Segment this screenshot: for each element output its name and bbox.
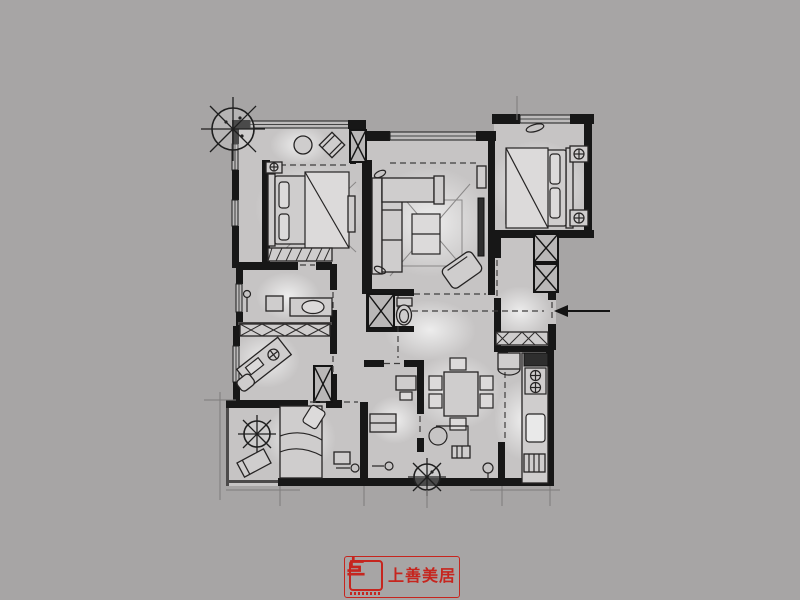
shaft-column [534, 264, 558, 292]
washer [266, 296, 283, 311]
bedside-lamp [270, 163, 278, 171]
desk [396, 376, 416, 390]
pillow [279, 214, 289, 240]
chair [429, 394, 442, 408]
balcony-cabinet [350, 130, 366, 162]
logo-monogram-icon [349, 560, 383, 591]
chair [450, 418, 466, 430]
pillow [550, 154, 560, 184]
chair [429, 376, 442, 390]
range-hood [524, 353, 548, 366]
dining-table [444, 372, 478, 416]
pillow [550, 188, 560, 218]
sofa-armrest [434, 176, 444, 204]
bedside-lamp [574, 213, 584, 223]
side-shelf [477, 166, 486, 188]
dresser [268, 248, 332, 261]
nightstand [334, 452, 350, 464]
logo-subtext-marks [350, 592, 382, 595]
stool [400, 392, 412, 400]
tree-bottom-left [238, 415, 276, 453]
entry-furniture [496, 332, 548, 345]
powder-room-furniture [397, 298, 413, 325]
corner-shelf [314, 366, 332, 402]
bedside-lamp [574, 149, 584, 159]
round-table [294, 136, 312, 154]
burner [531, 383, 541, 393]
shaft-column [368, 294, 394, 328]
sink [302, 301, 324, 314]
floor-plan [0, 0, 800, 600]
burner [531, 371, 541, 381]
logo-mark-wrap [349, 560, 383, 595]
pillow [279, 182, 289, 208]
side-cabinet [498, 353, 520, 369]
sink [526, 414, 545, 442]
entry-arrow [554, 305, 610, 317]
chair [480, 376, 493, 390]
brand-name: 上善美居 [388, 569, 456, 585]
wardrobe-row [240, 324, 330, 336]
sofa-chaise [382, 178, 434, 202]
shaft-column [534, 234, 558, 262]
canvas: 上善美居 [0, 0, 800, 600]
bench [348, 196, 355, 232]
bar-cabinet [452, 446, 470, 458]
tree-top-left [201, 97, 265, 161]
tv-panel [478, 198, 484, 256]
headboard [268, 174, 275, 246]
brand-logo: 上善美居 [344, 556, 460, 598]
sofa-back [372, 178, 382, 274]
chair [480, 394, 493, 408]
shoe-cabinet [496, 332, 548, 345]
chair [450, 358, 466, 370]
